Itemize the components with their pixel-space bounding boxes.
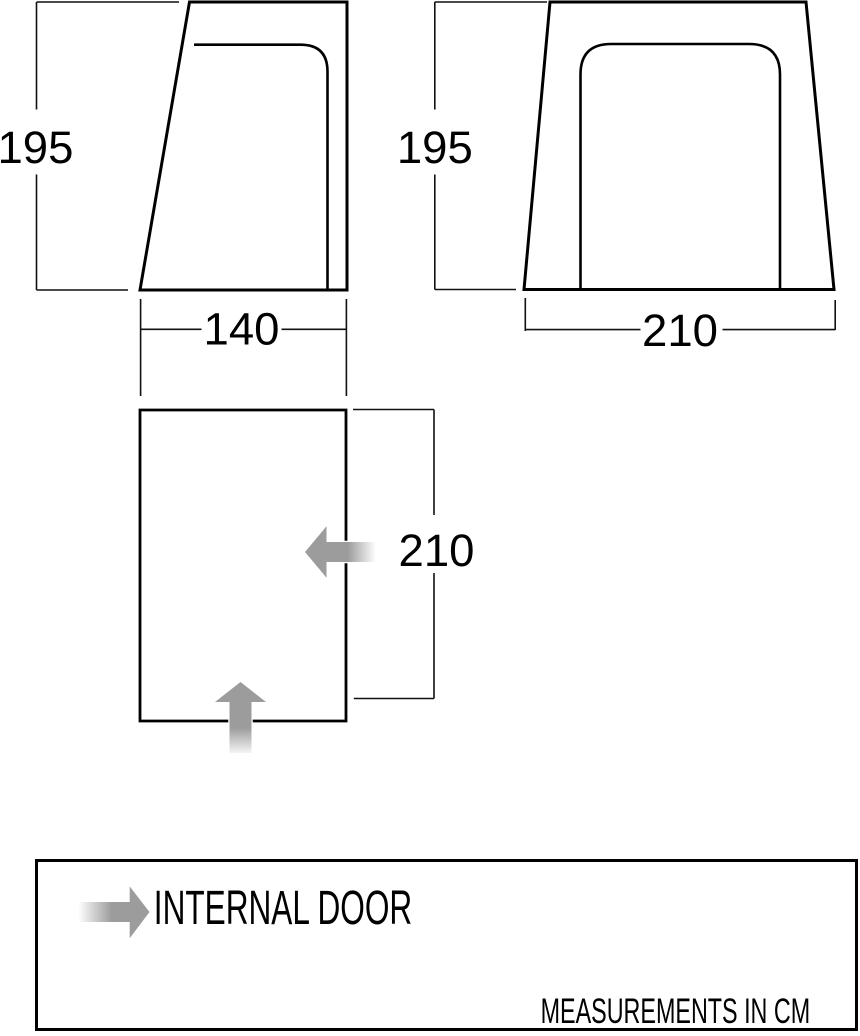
svg-text:140: 140: [204, 303, 280, 354]
svg-text:210: 210: [642, 305, 718, 356]
svg-text:195: 195: [397, 122, 473, 173]
svg-text:210: 210: [399, 525, 475, 576]
svg-text:MEASUREMENTS IN CM: MEASUREMENTS IN CM: [541, 992, 811, 1031]
svg-text:195: 195: [0, 122, 73, 173]
svg-text:INTERNAL DOOR: INTERNAL DOOR: [154, 880, 412, 934]
